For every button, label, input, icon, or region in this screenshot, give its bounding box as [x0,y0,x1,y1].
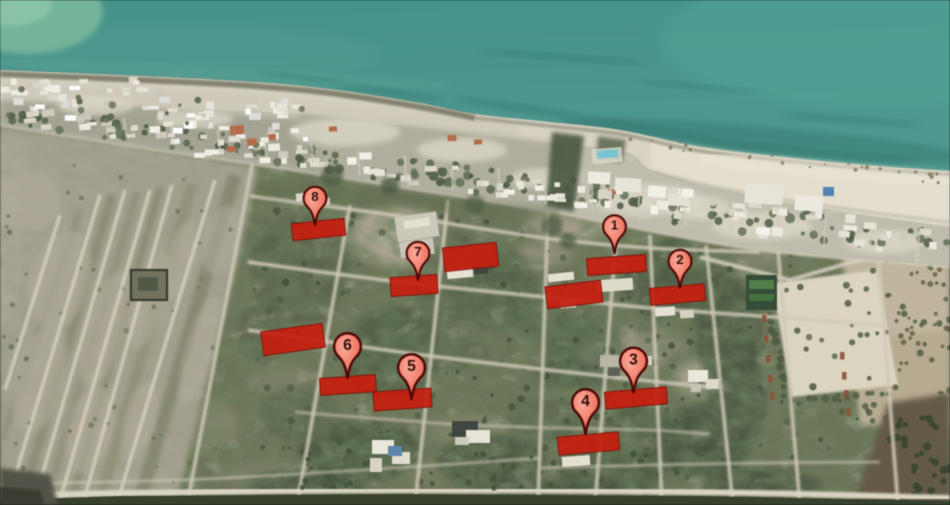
svg-text:4: 4 [581,393,590,410]
svg-text:7: 7 [414,244,421,259]
svg-text:5: 5 [407,358,416,375]
svg-text:3: 3 [629,352,638,369]
svg-text:8: 8 [311,189,318,204]
svg-text:2: 2 [676,252,683,267]
svg-text:6: 6 [343,337,352,354]
svg-text:1: 1 [611,218,619,233]
